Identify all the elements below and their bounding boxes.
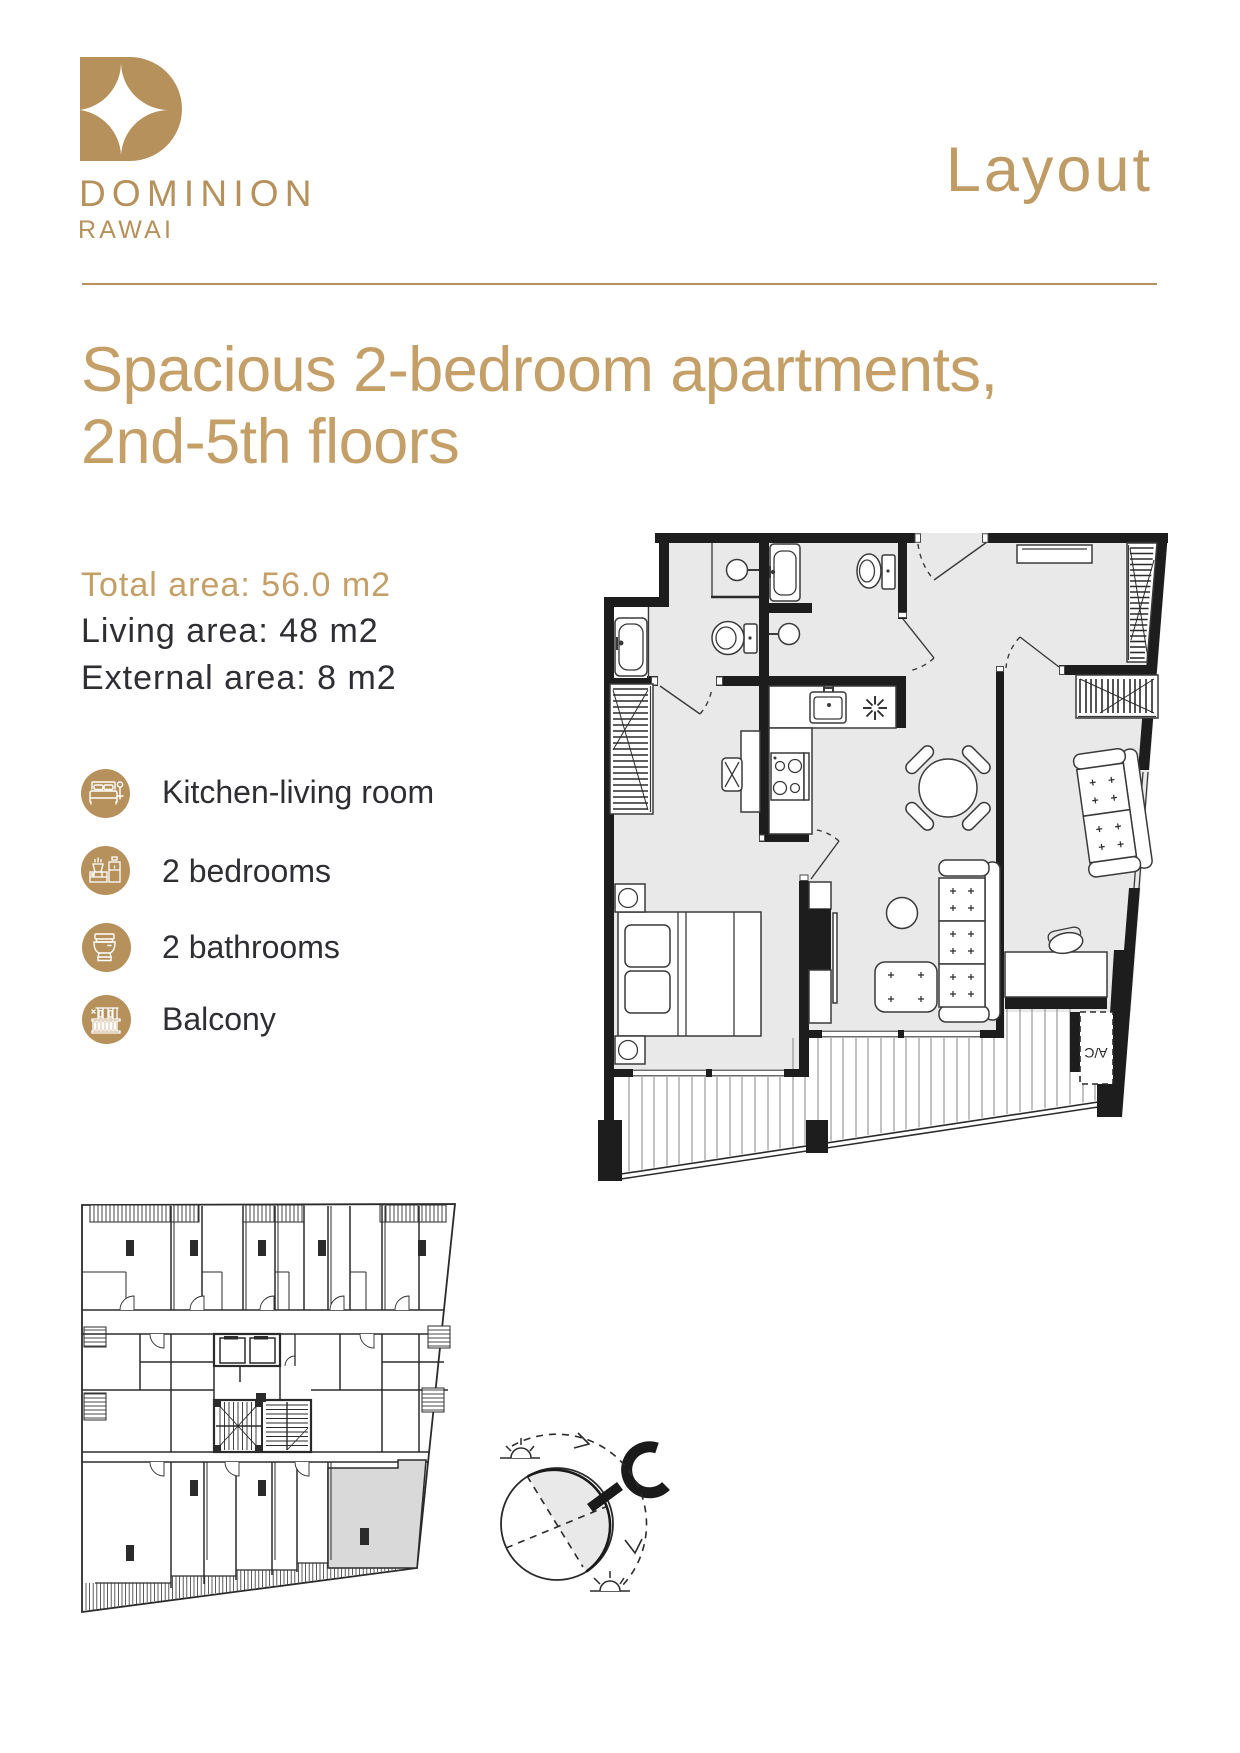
svg-text:A/C: A/C: [1084, 1045, 1107, 1061]
